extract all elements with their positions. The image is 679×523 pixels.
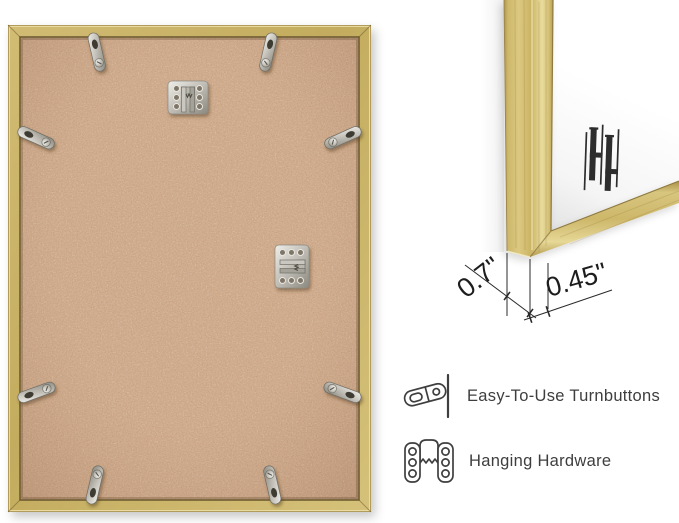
turnbutton-icon <box>402 372 454 420</box>
dimension-depth-label: 0.7" <box>451 251 507 304</box>
sawtooth-hanger-middle <box>275 245 309 288</box>
feature-hanging-hardware: Hanging Hardware <box>402 436 611 486</box>
frame-corner-view: 0.7" 0.45" <box>420 0 679 345</box>
feature-turnbuttons: Easy-To-Use Turnbuttons <box>402 372 660 420</box>
feature-turnbuttons-label: Easy-To-Use Turnbuttons <box>467 387 660 406</box>
dimension-face-width-label: 0.45" <box>542 257 610 303</box>
feature-hanging-hardware-label: Hanging Hardware <box>469 452 611 471</box>
frame-cast-shadow <box>480 0 504 252</box>
product-infographic: 0.7" 0.45" Easy-To-Use Turnbuttons <box>0 0 679 523</box>
frame-back-view <box>0 0 420 523</box>
sawtooth-hanger-icon <box>402 436 456 486</box>
sawtooth-hanger-top <box>168 81 208 114</box>
